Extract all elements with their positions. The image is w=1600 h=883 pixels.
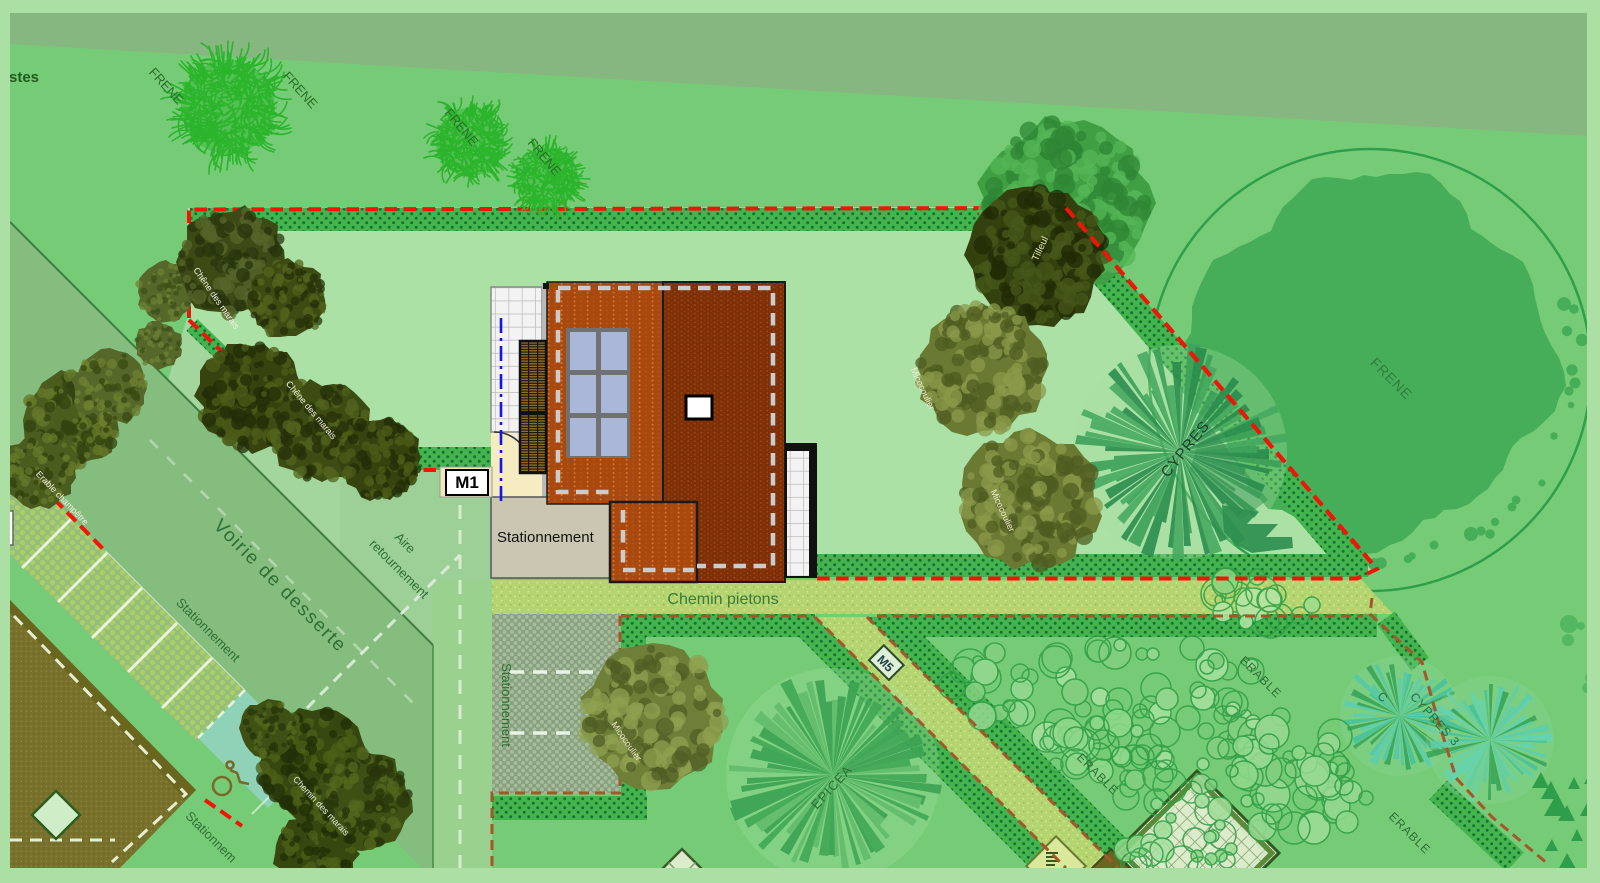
- svg-text:Stationnement: Stationnement: [497, 529, 595, 546]
- svg-text:Chemin pietons: Chemin pietons: [667, 591, 778, 608]
- svg-text:M1: M1: [455, 473, 479, 492]
- svg-text:Stationnement: Stationnement: [499, 663, 514, 747]
- svg-text:stes: stes: [9, 69, 39, 86]
